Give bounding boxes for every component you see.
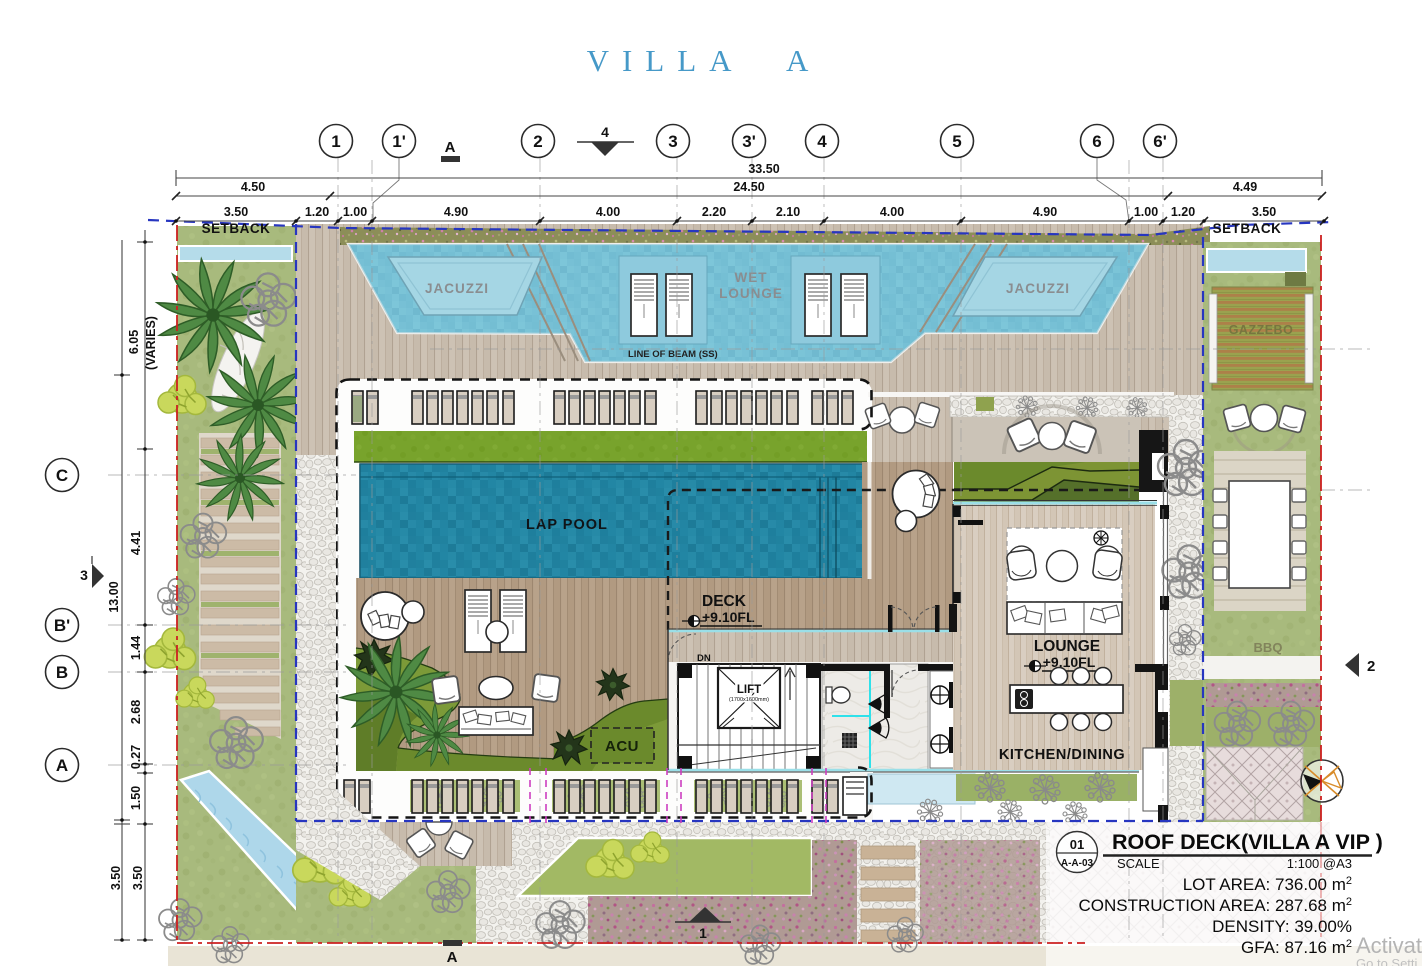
svg-text:A: A: [56, 756, 68, 775]
svg-text:33.50: 33.50: [748, 162, 779, 176]
svg-text:1.20: 1.20: [1171, 205, 1195, 219]
svg-text:4.49: 4.49: [1233, 180, 1257, 194]
svg-text:4.90: 4.90: [1033, 205, 1057, 219]
svg-text:4.41: 4.41: [129, 531, 143, 555]
svg-text:B: B: [56, 663, 68, 682]
svg-text:SETBACK: SETBACK: [1213, 221, 1282, 236]
svg-text:1.00: 1.00: [1134, 205, 1158, 219]
svg-text:DENSITY: 39.00%: DENSITY: 39.00%: [1212, 917, 1352, 936]
svg-text:0.27: 0.27: [129, 745, 143, 769]
svg-text:+9.10FL: +9.10FL: [702, 609, 755, 625]
svg-text:4: 4: [817, 132, 827, 151]
svg-text:(1700x1600mm): (1700x1600mm): [729, 697, 769, 703]
svg-text:6': 6': [1153, 132, 1167, 151]
svg-text:LOUNGE: LOUNGE: [1034, 638, 1100, 655]
svg-text:ACU: ACU: [605, 738, 639, 755]
svg-text:DN: DN: [697, 653, 711, 664]
svg-text:BBQ: BBQ: [1254, 640, 1283, 655]
svg-text:3: 3: [80, 567, 88, 583]
svg-text:3': 3': [742, 132, 756, 151]
svg-text:3.50: 3.50: [1252, 205, 1276, 219]
svg-text:LINE OF BEAM (SS): LINE OF BEAM (SS): [628, 349, 718, 360]
svg-text:1: 1: [699, 925, 707, 941]
svg-text:Activate: Activate: [1356, 933, 1422, 958]
svg-text:6.05: 6.05: [127, 330, 141, 354]
svg-text:1.44: 1.44: [129, 636, 143, 660]
svg-text:SCALE: SCALE: [1117, 856, 1160, 871]
svg-text:Go to Setti: Go to Setti: [1356, 956, 1418, 966]
svg-text:4.00: 4.00: [880, 205, 904, 219]
svg-text:13.00: 13.00: [107, 581, 121, 612]
svg-text:2.68: 2.68: [129, 700, 143, 724]
svg-text:1:100 @A3: 1:100 @A3: [1287, 856, 1352, 871]
svg-text:VILLA A: VILLA A: [587, 43, 822, 78]
svg-text:3: 3: [668, 132, 677, 151]
svg-text:DECK: DECK: [702, 593, 747, 610]
svg-text:4.00: 4.00: [596, 205, 620, 219]
svg-text:LAP POOL: LAP POOL: [526, 517, 608, 533]
svg-text:3.50: 3.50: [224, 205, 248, 219]
svg-text:2.20: 2.20: [702, 205, 726, 219]
svg-text:+9.10FL: +9.10FL: [1043, 654, 1096, 670]
svg-text:1: 1: [331, 132, 340, 151]
svg-text:LOT AREA: 736.00 m2: LOT AREA: 736.00 m2: [1183, 875, 1352, 894]
svg-text:1': 1': [392, 132, 406, 151]
svg-text:4: 4: [601, 124, 609, 140]
svg-text:5: 5: [952, 132, 961, 151]
svg-text:6: 6: [1092, 132, 1101, 151]
svg-text:2: 2: [1367, 658, 1375, 675]
svg-text:4.50: 4.50: [241, 180, 265, 194]
svg-text:01: 01: [1070, 837, 1084, 852]
svg-text:B': B': [54, 616, 70, 635]
svg-text:2.10: 2.10: [776, 205, 800, 219]
svg-text:A-A-03: A-A-03: [1061, 858, 1094, 869]
svg-text:(VARIES): (VARIES): [144, 316, 158, 370]
svg-text:2: 2: [533, 132, 542, 151]
svg-text:A: A: [445, 139, 456, 156]
svg-text:3.50: 3.50: [109, 866, 123, 890]
svg-text:JACUZZI: JACUZZI: [1006, 281, 1070, 296]
svg-text:ROOF DECK(VILLA A VIP ): ROOF DECK(VILLA A VIP ): [1112, 830, 1383, 854]
svg-text:C: C: [56, 466, 68, 485]
svg-text:24.50: 24.50: [733, 180, 764, 194]
svg-text:JACUZZI: JACUZZI: [425, 281, 489, 296]
svg-text:CONSTRUCTION AREA: 287.68 m2: CONSTRUCTION AREA: 287.68 m2: [1079, 896, 1352, 915]
svg-text:GFA: 87.16 m2: GFA: 87.16 m2: [1241, 938, 1352, 957]
svg-text:LOUNGE: LOUNGE: [719, 286, 783, 301]
svg-text:LIFT: LIFT: [737, 684, 761, 696]
svg-text:A: A: [447, 949, 458, 966]
svg-text:SETBACK: SETBACK: [202, 221, 271, 236]
svg-text:1.50: 1.50: [129, 786, 143, 810]
svg-text:1.00: 1.00: [343, 205, 367, 219]
svg-text:GAZZEBO: GAZZEBO: [1229, 323, 1294, 337]
svg-text:KITCHEN/DINING: KITCHEN/DINING: [999, 747, 1125, 763]
svg-text:3.50: 3.50: [131, 866, 145, 890]
svg-text:4.90: 4.90: [444, 205, 468, 219]
svg-text:1.20: 1.20: [305, 205, 329, 219]
svg-text:WET: WET: [735, 270, 768, 285]
